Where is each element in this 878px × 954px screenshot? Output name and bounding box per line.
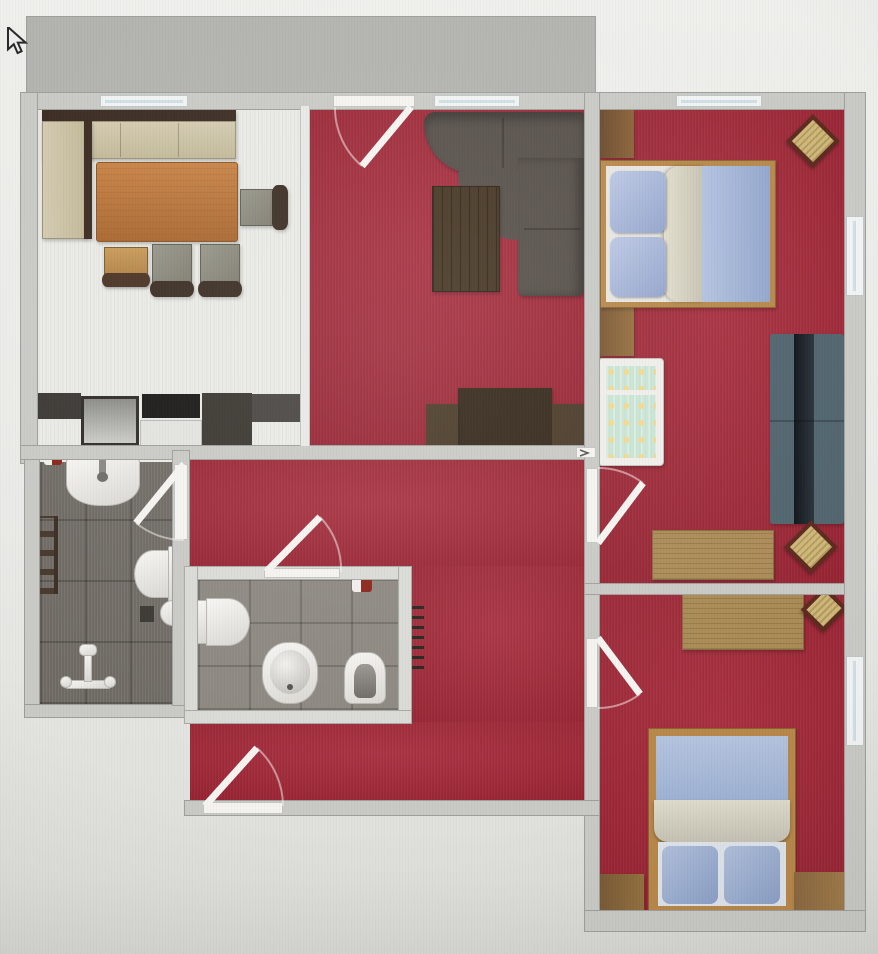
bedroom-large-door-opening[interactable] xyxy=(586,468,598,543)
faucet-knob xyxy=(97,472,108,482)
dining-chair-back xyxy=(150,281,194,297)
blue-sofa-shadow xyxy=(794,334,814,524)
radiator xyxy=(412,646,424,649)
radiator xyxy=(412,656,424,659)
wall-notch xyxy=(576,447,596,458)
wall-kitchen-living-south xyxy=(20,445,600,460)
dining-chair[interactable] xyxy=(152,244,192,284)
kitchen-cabinet-dark[interactable] xyxy=(252,394,300,422)
wall-wc-left xyxy=(184,566,198,724)
corner-sofa[interactable] xyxy=(518,158,584,296)
dining-chair[interactable] xyxy=(200,244,240,284)
baby-crib-divider xyxy=(606,390,656,395)
bench-seam xyxy=(120,123,121,157)
bed-duvet-beige xyxy=(664,166,704,302)
tv-sideboard[interactable] xyxy=(458,388,552,448)
bed-pillow xyxy=(724,846,780,904)
tall-kitchen-unit[interactable] xyxy=(202,393,252,446)
desk[interactable] xyxy=(652,530,774,580)
tv-sideboard[interactable] xyxy=(552,404,584,450)
bed-pillow xyxy=(662,846,718,904)
oven[interactable] xyxy=(81,396,139,446)
wall-left-upper xyxy=(20,92,38,464)
wall-wc-bottom xyxy=(184,710,412,724)
wall-bedroom-divider xyxy=(584,583,864,595)
shower-stem xyxy=(84,652,92,682)
urinal-opening xyxy=(354,664,376,698)
wc-door-opening[interactable] xyxy=(264,568,340,578)
right-wall-window-lower[interactable] xyxy=(846,656,864,746)
kitchen-worktop[interactable] xyxy=(33,393,81,419)
bed-pillow xyxy=(610,237,666,297)
kitchen-cabinet[interactable] xyxy=(140,420,202,446)
bed-duvet-blue xyxy=(702,166,770,302)
radiator xyxy=(412,626,424,629)
cooktop[interactable] xyxy=(142,394,200,418)
wall-wc-right xyxy=(398,566,412,724)
living-room-window[interactable] xyxy=(434,95,520,107)
bench-seam xyxy=(178,123,179,157)
bed-pillow xyxy=(610,171,666,233)
toilet-bowl[interactable] xyxy=(206,598,250,646)
wardrobe[interactable] xyxy=(600,110,634,158)
shower-knob xyxy=(104,676,116,688)
corner-bench-backrail[interactable] xyxy=(42,110,236,121)
paper-holder[interactable] xyxy=(140,606,154,622)
corner-bench-seat[interactable] xyxy=(42,121,86,239)
radiator xyxy=(412,666,424,669)
entrance-door-opening[interactable] xyxy=(203,802,283,814)
dining-table[interactable] xyxy=(96,162,238,242)
sofa-seam xyxy=(524,228,580,230)
shower-knob xyxy=(60,676,72,688)
room-hallway[interactable] xyxy=(190,722,584,802)
wall-left-lower xyxy=(24,452,40,718)
radiator xyxy=(412,636,424,639)
coffee-table[interactable] xyxy=(432,186,500,292)
room-hallway[interactable] xyxy=(412,566,584,722)
shower-head xyxy=(79,644,97,656)
wardrobe[interactable] xyxy=(794,872,844,910)
blue-sofa-seam xyxy=(770,420,844,422)
wardrobe[interactable] xyxy=(600,874,644,910)
sofa-seam xyxy=(502,118,504,168)
desk[interactable] xyxy=(682,592,804,650)
single-bed-blanket xyxy=(654,800,790,842)
toilet-bowl[interactable] xyxy=(134,550,172,598)
single-bed-sheet xyxy=(656,736,788,806)
arrow-cursor-icon xyxy=(6,27,32,57)
bathroom-door-opening[interactable] xyxy=(174,464,188,540)
wall-bathroom-bottom xyxy=(24,704,190,718)
stool-chair-back xyxy=(102,273,150,287)
bedroom-top-window[interactable] xyxy=(676,95,762,107)
balcony-door-opening[interactable] xyxy=(333,95,415,107)
room-hallway[interactable] xyxy=(190,460,584,566)
dining-chair-back xyxy=(198,281,242,297)
bedroom-small-door-opening[interactable] xyxy=(586,638,598,708)
right-wall-window-upper[interactable] xyxy=(846,216,864,296)
decor-item[interactable] xyxy=(352,578,372,592)
corner-bench-rail xyxy=(84,121,92,239)
partition-kitchen-living xyxy=(300,106,310,446)
dining-chair[interactable] xyxy=(240,189,274,226)
baby-crib-bedding xyxy=(606,366,656,458)
radiator xyxy=(412,616,424,619)
kitchen-window[interactable] xyxy=(100,95,188,107)
radiator[interactable] xyxy=(412,606,424,609)
deck-frame xyxy=(26,16,596,94)
wall-bottom xyxy=(584,910,866,932)
bidet-drain xyxy=(287,684,293,690)
dining-chair-back xyxy=(272,185,288,230)
tv-sideboard[interactable] xyxy=(426,404,458,450)
floor-plan-canvas xyxy=(0,0,878,954)
